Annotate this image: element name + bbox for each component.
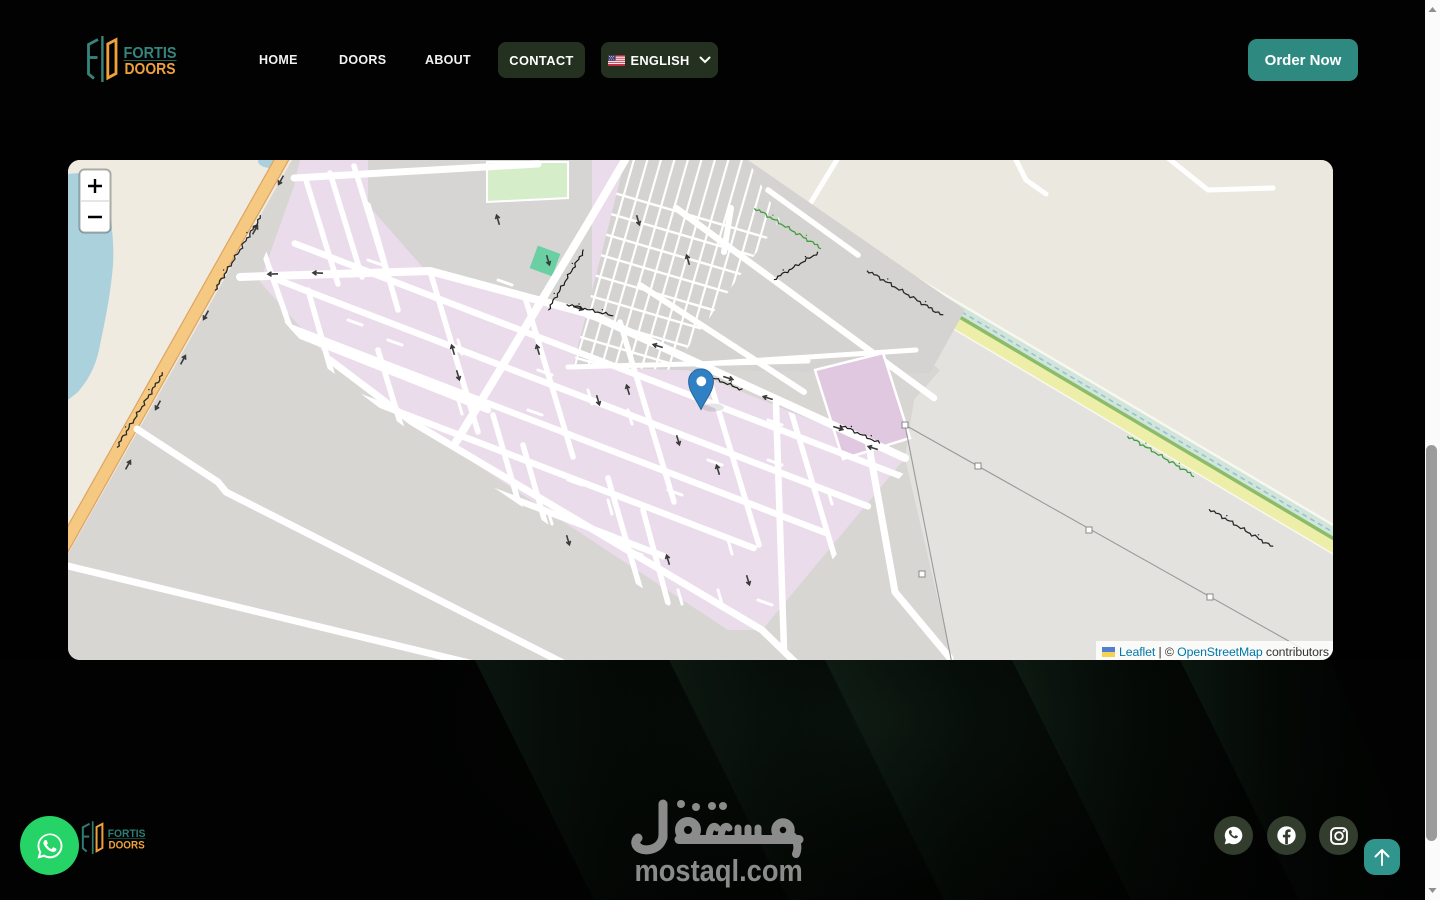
svg-text:FORTIS: FORTIS	[108, 828, 146, 840]
svg-text:DOORS: DOORS	[108, 839, 145, 851]
svg-text:Leaflet | © OpenStreetMap cont: Leaflet | © OpenStreetMap contributors	[1119, 645, 1329, 659]
svg-text:FORTIS: FORTIS	[124, 45, 177, 62]
svg-text:DOORS: DOORS	[125, 61, 176, 78]
